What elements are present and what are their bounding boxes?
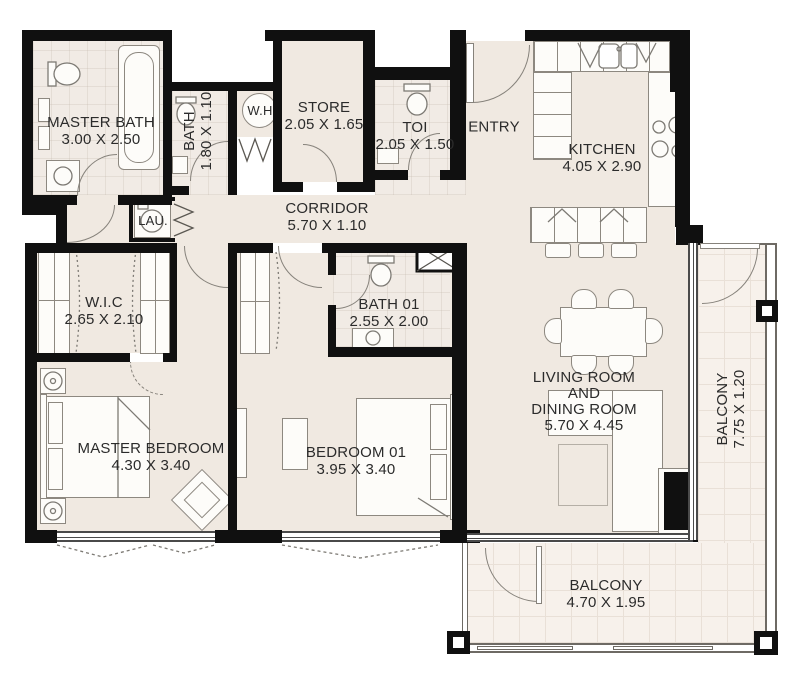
room-dims: 2.65 X 2.10 [65, 311, 144, 328]
bifold-door-wh [239, 139, 271, 161]
wall-segment [375, 170, 408, 180]
balcony-post [447, 631, 470, 654]
wall-segment [25, 243, 37, 543]
wall-segment [228, 243, 237, 530]
rail-dash [276, 252, 280, 351]
wall-segment [676, 225, 703, 245]
room-dims: 2.05 X 1.65 [285, 116, 364, 133]
room-label-master-bedroom: MASTER BEDROOM 4.30 X 3.40 [78, 440, 225, 474]
toilet-bath-01 [368, 256, 394, 286]
room-label-master-bath: MASTER BATH 3.00 X 2.50 [47, 114, 155, 148]
wall-segment [440, 170, 466, 180]
bed-fold-line [418, 498, 448, 517]
window [467, 533, 693, 542]
room-name: W.I.C [65, 294, 144, 311]
room-label-balcony-side: BALCONY 7.75 X 1.20 [714, 370, 748, 449]
basin-icon [366, 331, 380, 345]
room-label-bedroom-01: BEDROOM 01 3.95 X 3.40 [306, 444, 406, 478]
room-dims: 3.95 X 3.40 [306, 461, 406, 478]
cabinet-chevron [600, 209, 628, 222]
toilet-toi [404, 84, 430, 115]
room-label-kitchen: KITCHEN 4.05 X 2.90 [563, 141, 642, 175]
wall-segment [163, 82, 282, 91]
balcony-post [756, 300, 778, 322]
room-name: BATH 01 [350, 296, 429, 313]
room-dims: 4.70 X 1.95 [567, 594, 646, 611]
wall-segment [322, 243, 457, 253]
room-label-wh: W.H [247, 104, 272, 118]
room-dims: 5.70 X 1.10 [285, 217, 368, 234]
wall-segment [33, 195, 77, 205]
wall-segment [265, 30, 373, 41]
room-name: BEDROOM 01 [306, 444, 406, 461]
room-name: LAU. [138, 214, 168, 228]
room-dims: 2.05 X 1.50 [376, 136, 455, 153]
wall-segment [273, 182, 303, 192]
lamp-dot-icon [51, 509, 56, 514]
wall-segment [363, 30, 375, 192]
room-name: AND [531, 386, 637, 402]
room-dims: 2.55 X 2.00 [350, 313, 429, 330]
wall-segment [237, 243, 273, 253]
wall-segment [22, 30, 33, 215]
room-label-entry: ENTRY [468, 119, 520, 136]
wall-segment [670, 30, 690, 92]
wall-segment [25, 530, 57, 543]
room-name: TOI [376, 119, 455, 136]
lamp-dot-icon [51, 379, 56, 384]
room-label-wic: W.I.C 2.65 X 2.10 [65, 294, 144, 328]
window-swing-dash [153, 545, 215, 553]
wall-segment [22, 30, 172, 41]
room-label-toi: TOI 2.05 X 1.50 [376, 119, 455, 153]
room-label-bath-01: BATH 01 2.55 X 2.00 [350, 296, 429, 330]
floor-plan: MASTER BATH 3.00 X 2.50 BATH 1.80 X 1.10… [0, 0, 800, 681]
wall-segment [118, 195, 172, 205]
window [688, 243, 698, 540]
balcony-post [754, 631, 778, 655]
wall-segment [163, 353, 177, 362]
room-dims: 3.00 X 2.50 [47, 131, 155, 148]
wall-segment [163, 30, 172, 195]
room-name: KITCHEN [563, 141, 642, 158]
wall-segment [215, 530, 282, 543]
basin-icon [54, 167, 72, 185]
room-name: BATH [181, 92, 198, 171]
room-name: BALCONY [567, 577, 646, 594]
window [282, 531, 440, 542]
wall-segment [25, 243, 177, 253]
room-name: MASTER BATH [47, 114, 155, 131]
handrail-detail [613, 646, 713, 650]
balcony-side-edge [462, 543, 468, 645]
wall-segment [25, 353, 130, 362]
door-leaf-entry [466, 43, 474, 103]
wall-segment [228, 82, 237, 195]
window-swing-dash [57, 545, 150, 557]
room-name: MASTER BEDROOM [78, 440, 225, 457]
room-name: CORRIDOR [285, 200, 368, 217]
door-leaf-balcony-bottom [536, 546, 542, 604]
room-dims: 4.30 X 3.40 [78, 457, 225, 474]
room-label-balcony-bottom: BALCONY 4.70 X 1.95 [567, 577, 646, 611]
room-dims: 7.75 X 1.20 [731, 370, 748, 449]
room-name: LIVING ROOM [531, 370, 637, 386]
wall-segment [328, 253, 336, 275]
cabinet-chevron [548, 209, 576, 222]
room-label-bath: BATH 1.80 X 1.10 [181, 92, 215, 171]
wall-segment [56, 204, 67, 243]
wall-segment [452, 243, 467, 543]
wall-segment [450, 30, 466, 180]
room-dims: 5.70 X 4.45 [531, 418, 637, 434]
room-name: BALCONY [714, 370, 731, 449]
room-dims: 4.05 X 2.90 [563, 158, 642, 175]
room-label-store: STORE 2.05 X 1.65 [285, 99, 364, 133]
cabinet-chevron [636, 43, 656, 62]
wall-segment [170, 243, 177, 362]
wall-segment [273, 30, 282, 192]
bifold-door-lau [174, 204, 193, 236]
room-label-corridor: CORRIDOR 5.70 X 1.10 [285, 200, 368, 234]
window-swing-dash [282, 545, 438, 558]
kitchen-sink-icon [599, 44, 637, 68]
wall-segment [337, 182, 363, 192]
room-name: ENTRY [468, 119, 520, 136]
room-name: W.H [247, 104, 272, 118]
room-dims: 1.80 X 1.10 [198, 92, 215, 171]
room-name: DINING ROOM [531, 402, 637, 418]
room-label-lau: LAU. [138, 214, 168, 228]
toilet-master-bath [48, 62, 80, 86]
room-label-living-dining: LIVING ROOM AND DINING ROOM 5.70 X 4.45 [531, 370, 637, 434]
lamp-icon [44, 372, 62, 390]
room-name: STORE [285, 99, 364, 116]
lamp-icon [44, 502, 62, 520]
window [57, 531, 215, 542]
wall-segment [525, 30, 690, 41]
wall-segment [328, 347, 457, 357]
door-leaf-balcony-side [700, 243, 760, 249]
handrail-detail [477, 646, 573, 650]
wall-segment [172, 186, 189, 195]
wall-segment [675, 90, 690, 227]
